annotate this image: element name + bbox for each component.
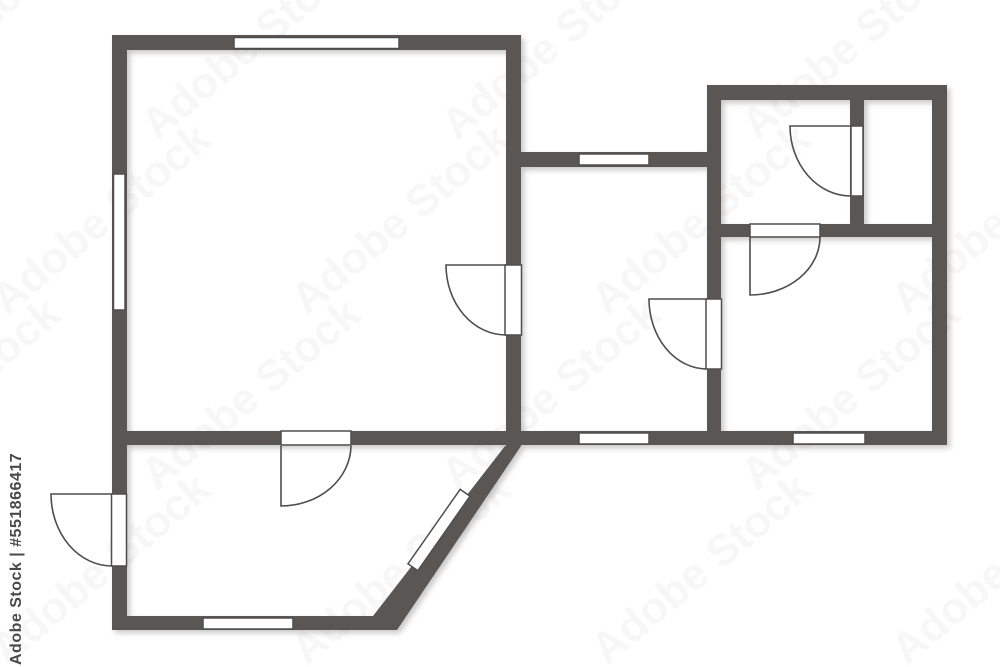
walls-layer (112, 35, 947, 630)
window-top-living (234, 38, 399, 49)
floor-plan-drawing: Adobe StockAdobe StockAdobe StockAdobe S… (0, 0, 1000, 667)
door-swing-lower-room (281, 446, 351, 506)
floor-plan-stock-image: Adobe StockAdobe StockAdobe StockAdobe S… (0, 0, 1000, 667)
adobe-stock-tile-watermark: Adobe Stock (432, 0, 670, 149)
window-top-middle (579, 154, 649, 165)
door-opening-right-block (750, 224, 820, 237)
window-bottom-middle (579, 433, 649, 444)
door-opening-top-divider (851, 126, 863, 196)
window-left-living (114, 174, 126, 310)
adobe-stock-tile-watermark: Adobe Stock (582, 113, 820, 324)
adobe-stock-id-watermark: Adobe Stock | #551866417 (8, 453, 26, 665)
wall-right-exterior (932, 85, 947, 445)
adobe-stock-tile-watermark: Adobe Stock (432, 288, 670, 499)
window-bottom-lower-room (203, 618, 293, 629)
door-opening-lower-room (281, 431, 351, 445)
door-opening-left-exterior (112, 494, 127, 566)
adobe-stock-tile-watermark: Adobe Stock (582, 463, 820, 667)
adobe-stock-tile-watermark: Adobe Stock (882, 463, 1000, 667)
door-opening-middle-right (706, 299, 722, 369)
adobe-stock-tile-watermark: Adobe Stock (132, 0, 370, 149)
wall-vertical-middle-right (707, 85, 721, 445)
adobe-stock-tile-watermark: Adobe Stock (132, 288, 370, 499)
adobe-stock-tile-watermark: Adobe Stock (282, 113, 520, 324)
window-bottom-right-room (793, 433, 865, 444)
door-swing-right-block (750, 237, 820, 295)
wall-top-right-block (707, 85, 947, 100)
door-opening-living-right (505, 265, 522, 335)
adobe-stock-tile-watermark: Adobe Stock (0, 0, 70, 149)
wall-right-living (506, 35, 521, 446)
door-swing-living-right (446, 265, 506, 335)
